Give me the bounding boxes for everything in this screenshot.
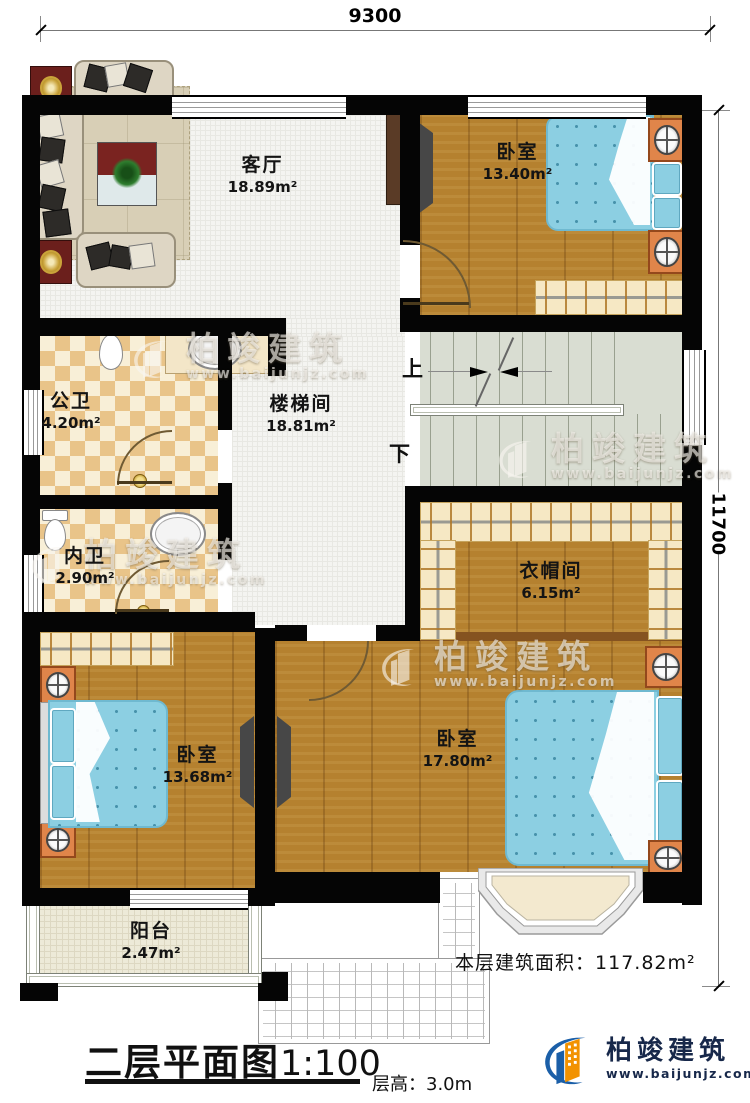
floor-height-label: 层高： bbox=[372, 1074, 426, 1095]
stair-hall-floor-main bbox=[232, 336, 405, 625]
plan-scale-text: 1:100 bbox=[280, 1044, 381, 1084]
lamp-icon bbox=[46, 828, 70, 852]
wall bbox=[22, 612, 255, 632]
door-leaf bbox=[115, 609, 169, 612]
room-area: 4.20m² bbox=[25, 414, 117, 433]
room-area: 2.90m² bbox=[35, 569, 135, 588]
room-label-bedroom1: 卧室 13.40m² bbox=[445, 141, 590, 184]
room-label-cloakroom: 衣帽间 6.15m² bbox=[480, 560, 622, 603]
window bbox=[468, 95, 646, 119]
stair-direction-line bbox=[428, 371, 472, 372]
nightstand bbox=[648, 118, 686, 162]
room-name: 内卫 bbox=[35, 545, 135, 569]
room-label-private-bath: 内卫 2.90m² bbox=[35, 545, 135, 588]
wall bbox=[643, 872, 702, 903]
sofa-cushion bbox=[38, 136, 65, 163]
wall bbox=[682, 445, 702, 905]
floor-height-text: 层高：3.0m bbox=[372, 1070, 472, 1096]
wardrobe bbox=[535, 280, 685, 315]
lamp-icon bbox=[654, 846, 681, 870]
title-underline bbox=[85, 1079, 360, 1084]
wall bbox=[400, 115, 420, 245]
floor-plan: 上 下 bbox=[0, 0, 750, 1103]
pillow bbox=[50, 708, 76, 764]
sofa-cushion bbox=[38, 184, 66, 212]
floor-area-label: 本层建筑面积： bbox=[455, 952, 595, 974]
lamp-icon bbox=[652, 653, 681, 682]
sink-icon bbox=[150, 512, 206, 556]
stairs-up-label: 上 bbox=[402, 353, 423, 383]
wall bbox=[22, 615, 40, 905]
stair-railing bbox=[410, 404, 624, 416]
balcony-railing bbox=[26, 973, 262, 987]
wall bbox=[22, 888, 130, 906]
wardrobe bbox=[40, 632, 174, 666]
balcony-corner-pier bbox=[20, 983, 58, 1001]
wall bbox=[420, 486, 702, 502]
nightstand bbox=[648, 230, 686, 274]
wardrobe bbox=[420, 502, 684, 542]
brand-name: 柏竣建筑 bbox=[606, 1037, 750, 1066]
wall bbox=[22, 115, 40, 390]
room-label-living: 客厅 18.89m² bbox=[190, 154, 335, 197]
plan-title: 二层平面图 1:100 bbox=[85, 1032, 381, 1086]
wall bbox=[405, 486, 420, 632]
wall bbox=[268, 318, 286, 376]
room-area: 13.68m² bbox=[130, 768, 265, 787]
wall bbox=[346, 95, 468, 115]
door-leaf bbox=[403, 302, 469, 305]
plant-icon bbox=[112, 158, 142, 188]
nightstand bbox=[40, 666, 76, 704]
room-label-stair-hall: 楼梯间 18.81m² bbox=[230, 393, 372, 436]
room-label-public-bath: 公卫 4.20m² bbox=[25, 390, 117, 433]
stairs-down-label: 下 bbox=[389, 438, 410, 468]
wall bbox=[275, 625, 307, 641]
tv-icon bbox=[277, 716, 291, 808]
room-name: 客厅 bbox=[190, 154, 335, 178]
room-label-bedroom3: 卧室 17.80m² bbox=[390, 728, 525, 771]
wall bbox=[218, 509, 232, 560]
lamp-icon bbox=[654, 237, 680, 267]
stair-direction-line bbox=[516, 371, 552, 372]
dimension-line-top bbox=[40, 30, 710, 31]
wall bbox=[682, 115, 702, 350]
brand-logo: 柏竣建筑 www.baijunjz.com bbox=[540, 1030, 750, 1088]
room-area: 13.40m² bbox=[445, 165, 590, 184]
stair-treads-lower bbox=[430, 414, 682, 486]
room-name: 公卫 bbox=[25, 390, 117, 414]
lamp-icon bbox=[654, 125, 680, 155]
wall bbox=[248, 888, 275, 906]
wall bbox=[275, 872, 440, 903]
table-decor-icon bbox=[40, 250, 62, 274]
room-name: 阳台 bbox=[85, 920, 217, 944]
room-name: 楼梯间 bbox=[230, 393, 372, 417]
room-area: 17.80m² bbox=[390, 752, 525, 771]
room-name: 卧室 bbox=[445, 141, 590, 165]
pillow bbox=[656, 696, 684, 776]
floor-height-value: 3.0m bbox=[426, 1074, 472, 1095]
pillow bbox=[652, 162, 682, 196]
plan-title-text: 二层平面图 bbox=[85, 1032, 280, 1086]
wardrobe bbox=[648, 540, 684, 640]
stair-hall-floor bbox=[286, 318, 405, 336]
window bbox=[682, 350, 706, 445]
sofa-cushion bbox=[128, 242, 155, 269]
wall bbox=[646, 95, 702, 115]
nightstand bbox=[645, 646, 687, 688]
balcony-sliding-door bbox=[130, 888, 248, 910]
floor-area-value: 117.82m² bbox=[595, 952, 696, 974]
brand-logo-icon bbox=[540, 1030, 598, 1088]
room-name: 卧室 bbox=[130, 744, 265, 768]
room-label-balcony: 阳台 2.47m² bbox=[85, 920, 217, 963]
room-area: 18.89m² bbox=[190, 178, 335, 197]
wall bbox=[218, 483, 232, 495]
lamp-icon bbox=[46, 672, 70, 698]
room-label-bedroom2: 卧室 13.68m² bbox=[130, 744, 265, 787]
room-area: 2.47m² bbox=[85, 944, 217, 963]
room-area: 6.15m² bbox=[480, 584, 622, 603]
wall bbox=[22, 495, 232, 509]
balcony-corner-pier bbox=[258, 983, 288, 1001]
room-area: 18.81m² bbox=[230, 417, 372, 436]
wall bbox=[22, 318, 286, 336]
dimension-width-label: 9300 bbox=[330, 5, 420, 27]
sofa-cushion bbox=[42, 208, 71, 237]
pillow bbox=[50, 764, 76, 820]
bay-window bbox=[478, 868, 643, 942]
sofa-cushion bbox=[36, 112, 64, 140]
brand-url: www.baijunjz.com bbox=[606, 1066, 750, 1081]
toilet-icon bbox=[99, 334, 123, 370]
dimension-height-label: 11700 bbox=[708, 493, 729, 553]
door-leaf bbox=[117, 481, 172, 484]
floor-area-text: 本层建筑面积：117.82m² bbox=[455, 948, 745, 975]
window bbox=[172, 95, 346, 119]
pillow bbox=[652, 196, 682, 230]
room-name: 衣帽间 bbox=[480, 560, 622, 584]
stair-treads-upper bbox=[430, 332, 622, 406]
wall bbox=[22, 95, 172, 115]
wardrobe bbox=[420, 540, 456, 640]
room-name: 卧室 bbox=[390, 728, 525, 752]
wall bbox=[400, 315, 682, 332]
tv-icon bbox=[418, 122, 433, 214]
